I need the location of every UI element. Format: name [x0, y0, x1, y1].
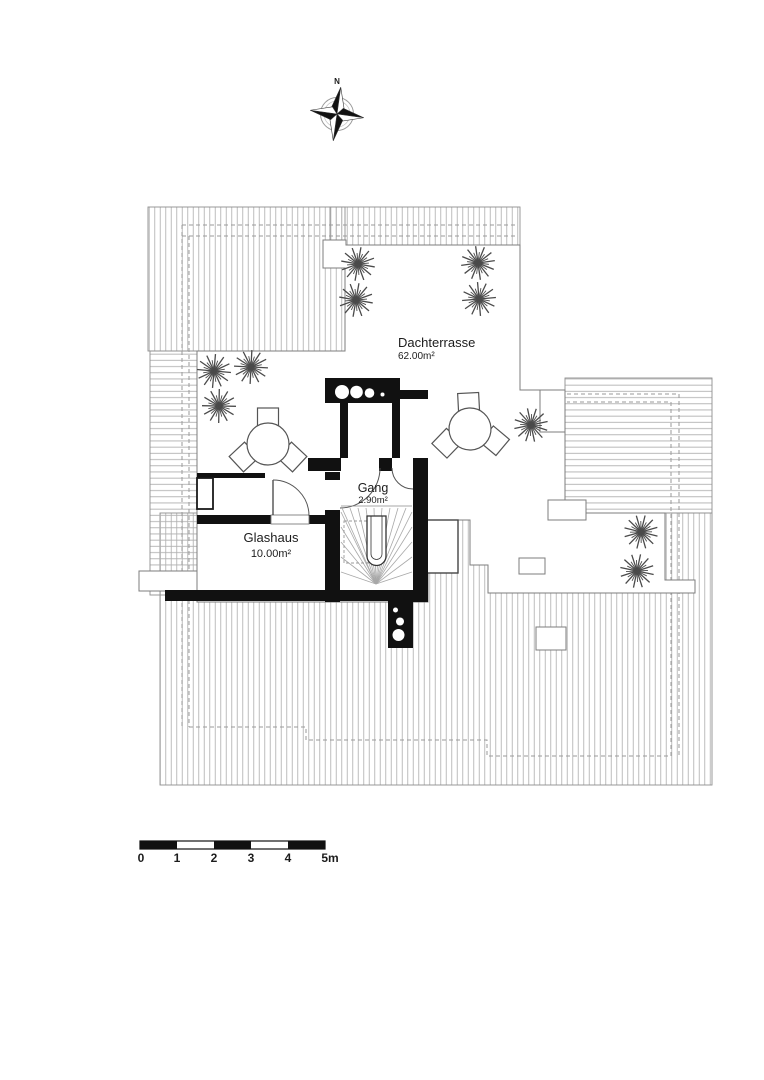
- room-area-dachterrasse: 62.00m²: [398, 351, 435, 362]
- scale-tick-3: 3: [248, 851, 255, 865]
- compass-north-label: N: [334, 77, 340, 86]
- scale-tick-5: 5m: [321, 851, 338, 865]
- roof-left-strip: [150, 351, 197, 595]
- roof-edge-box: [139, 571, 197, 591]
- room-label-gang: Gang: [358, 481, 389, 495]
- roof-window: [519, 558, 545, 574]
- stair-newel: [367, 516, 386, 566]
- dormer-box: [427, 520, 458, 573]
- scale-bar: 0 1 2 3 4 5m: [138, 841, 339, 865]
- roof-window: [536, 627, 566, 650]
- scale-tick-2: 2: [211, 851, 218, 865]
- glashaus-wall: [197, 515, 271, 524]
- roof-top-band: [330, 207, 520, 245]
- gang-wall-left: [325, 472, 340, 480]
- room-label-glashaus: Glashaus: [244, 530, 299, 545]
- roof-right: [565, 378, 712, 513]
- south-wall: [165, 590, 428, 601]
- room-label-dachterrasse: Dachterrasse: [398, 335, 475, 350]
- door-threshold: [271, 515, 309, 524]
- gang-wall-right: [413, 458, 428, 602]
- scale-tick-0: 0: [138, 851, 145, 865]
- parapet-wall: [400, 390, 428, 399]
- room-area-gang: 2.90m²: [358, 495, 388, 506]
- floor-plan-page: Dachterrasse 62.00m² Gang 2.90m² Glashau…: [0, 0, 764, 1080]
- glashaus-wall: [309, 515, 325, 524]
- roof-window: [548, 500, 586, 520]
- scale-tick-1: 1: [174, 851, 181, 865]
- shaft-wall-left: [340, 403, 348, 458]
- gang-wall: [308, 458, 341, 471]
- gang-wall: [379, 458, 392, 471]
- shaft-wall-right: [392, 403, 400, 458]
- room-area-glashaus: 10.00m²: [251, 548, 292, 560]
- floor-plan-drawing: Dachterrasse 62.00m² Gang 2.90m² Glashau…: [0, 0, 764, 1080]
- compass-icon: N: [307, 77, 368, 144]
- roof-window: [540, 390, 565, 432]
- scale-tick-4: 4: [285, 851, 292, 865]
- pillar: [197, 478, 213, 509]
- stair-wall-left: [325, 510, 340, 602]
- roof-top-left: [148, 207, 345, 351]
